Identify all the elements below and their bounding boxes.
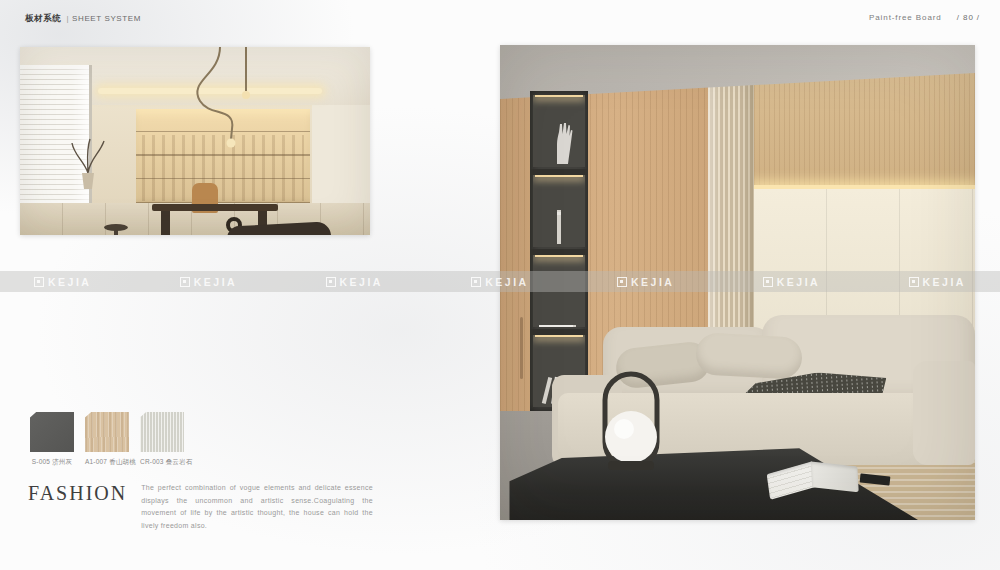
swatch-code: A1-007 — [85, 458, 107, 465]
watermark-brand: KEJIA — [48, 276, 91, 288]
header-series-label: Paint-free Board — [869, 13, 942, 22]
header-left: 板材系统|SHEET SYSTEM — [25, 13, 141, 25]
swatch-name: 叠云岩石 — [166, 458, 193, 465]
swatch-code: S-005 — [32, 458, 50, 465]
watermark-logo: KEJIA — [180, 276, 237, 288]
watermark-logo: KEJIA — [326, 276, 383, 288]
watermark-brand: KEJIA — [631, 276, 674, 288]
material-swatches: S-005 济州灰 A1-007 香山胡桃 CR-003 叠云岩石 — [30, 412, 184, 467]
kejia-mark-icon — [617, 277, 627, 287]
header-divider: | — [66, 14, 69, 23]
fashion-block: FASHION The perfect combination of vogue… — [28, 482, 373, 532]
dining-room-photo — [20, 47, 370, 235]
kejia-mark-icon — [326, 277, 336, 287]
swatch-code: CR-003 — [140, 458, 164, 465]
watermark-logo: KEJIA — [471, 276, 528, 288]
header-title-zh: 板材系统 — [25, 13, 61, 23]
swatch-item: A1-007 香山胡桃 — [85, 412, 129, 467]
watermark-brand: KEJIA — [777, 276, 820, 288]
swatch-item: S-005 济州灰 — [30, 412, 74, 467]
kejia-mark-icon — [763, 277, 773, 287]
watermark-brand: KEJIA — [485, 276, 528, 288]
swatch-chip-wood — [85, 412, 129, 452]
watermark-brand: KEJIA — [340, 276, 383, 288]
fashion-title: FASHION — [28, 482, 127, 504]
swatch-name: 济州灰 — [52, 458, 72, 465]
lp-vignette — [20, 47, 370, 235]
kejia-mark-icon — [909, 277, 919, 287]
swatch-label: A1-007 香山胡桃 — [85, 458, 129, 467]
swatch-name: 香山胡桃 — [109, 458, 136, 465]
watermark-logo: KEJIA — [34, 276, 91, 288]
fashion-description: The perfect combination of vogue element… — [141, 482, 373, 532]
catalog-page: 板材系统|SHEET SYSTEM Paint-free Board / 80 … — [0, 0, 1000, 570]
swatch-label: CR-003 叠云岩石 — [140, 458, 184, 467]
watermark-logo: KEJIA — [763, 276, 820, 288]
page-number: / 80 / — [957, 13, 980, 22]
kejia-mark-icon — [471, 277, 481, 287]
swatch-label: S-005 济州灰 — [30, 458, 74, 467]
watermark-brand: KEJIA — [923, 276, 966, 288]
watermark-brand: KEJIA — [194, 276, 237, 288]
kejia-mark-icon — [34, 277, 44, 287]
watermark-logo: KEJIA — [617, 276, 674, 288]
swatch-chip-stone — [140, 412, 184, 452]
watermark-band: KEJIA KEJIA KEJIA KEJIA KEJIA KEJIA KEJI… — [0, 271, 1000, 292]
swatch-chip-gray — [30, 412, 74, 452]
swatch-item: CR-003 叠云岩石 — [140, 412, 184, 467]
watermark-logo: KEJIA — [909, 276, 966, 288]
header-title-en: SHEET SYSTEM — [72, 14, 141, 23]
kejia-mark-icon — [180, 277, 190, 287]
header-right: Paint-free Board / 80 / — [869, 13, 980, 22]
